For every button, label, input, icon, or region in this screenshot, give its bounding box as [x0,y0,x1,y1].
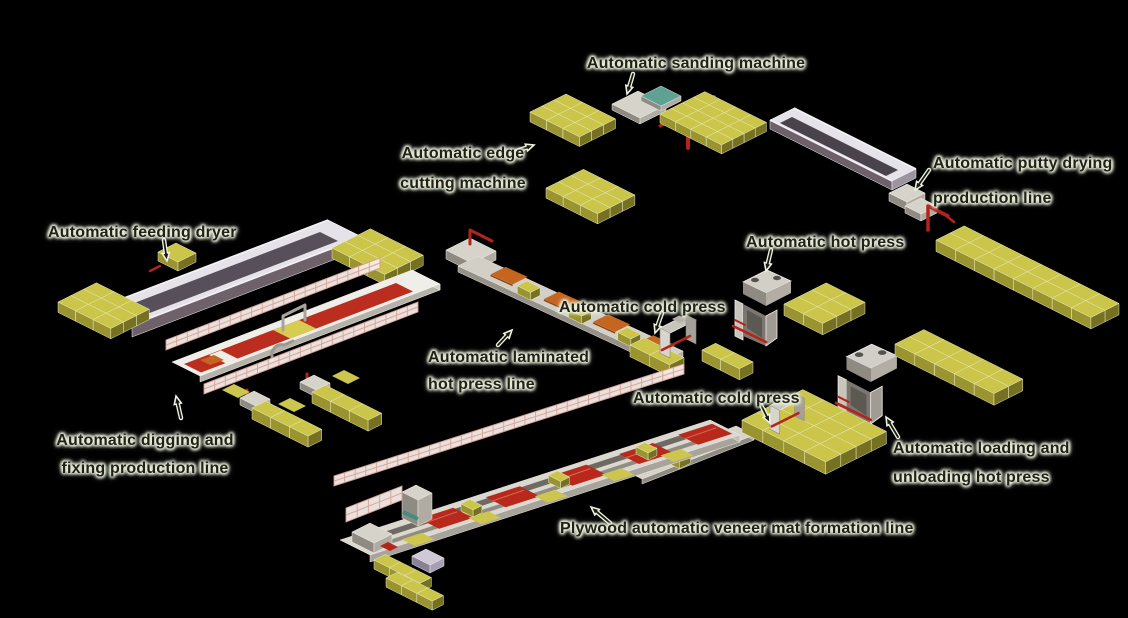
label-edge-cutting-machine: Automatic edge cutting machine [398,139,528,199]
label-text: Automatic cold press [559,296,726,321]
label-text: Automatic feeding dryer [48,221,237,246]
label-text: Automatic digging and [55,427,235,455]
label-text: Automatic edge [398,139,528,169]
hot-press-illustration [733,270,865,346]
label-cold-press-2: Automatic cold press [633,387,800,412]
label-text: unloading hot press [893,463,1070,492]
label-text: fixing production line [55,455,235,483]
label-text: Automatic laminated [428,344,589,371]
label-text: Plywood automatic veneer mat formation l… [560,517,914,542]
label-text: Automatic putty drying [933,146,1113,181]
label-sanding-machine: Automatic sanding machine [586,52,806,77]
label-hot-press: Automatic hot press [746,231,905,256]
label-digging-fixing-line: Automatic digging and fixing production … [55,427,235,483]
label-text: Automatic hot press [746,231,905,256]
label-text: production line [933,181,1113,216]
label-feeding-dryer: Automatic feeding dryer [48,221,237,246]
label-putty-drying-line: Automatic putty drying production line [933,146,1113,216]
label-text: hot press line [428,371,589,398]
label-text: cutting machine [398,169,528,199]
label-loading-unloading-hot-press: Automatic loading and unloading hot pres… [893,434,1070,492]
production-line-diagram: Automatic sanding machine Automatic edge… [0,0,1128,618]
label-laminated-hot-press-line: Automatic laminated hot press line [428,344,589,398]
label-text: Automatic cold press [633,387,800,412]
hot-press-machine [733,270,791,346]
label-veneer-mat-formation-line: Plywood automatic veneer mat formation l… [560,517,914,542]
label-text: Automatic loading and [893,434,1070,463]
sanding-machine-illustration [660,92,916,190]
label-text: Automatic sanding machine [586,52,806,77]
label-cold-press-1: Automatic cold press [559,296,726,321]
